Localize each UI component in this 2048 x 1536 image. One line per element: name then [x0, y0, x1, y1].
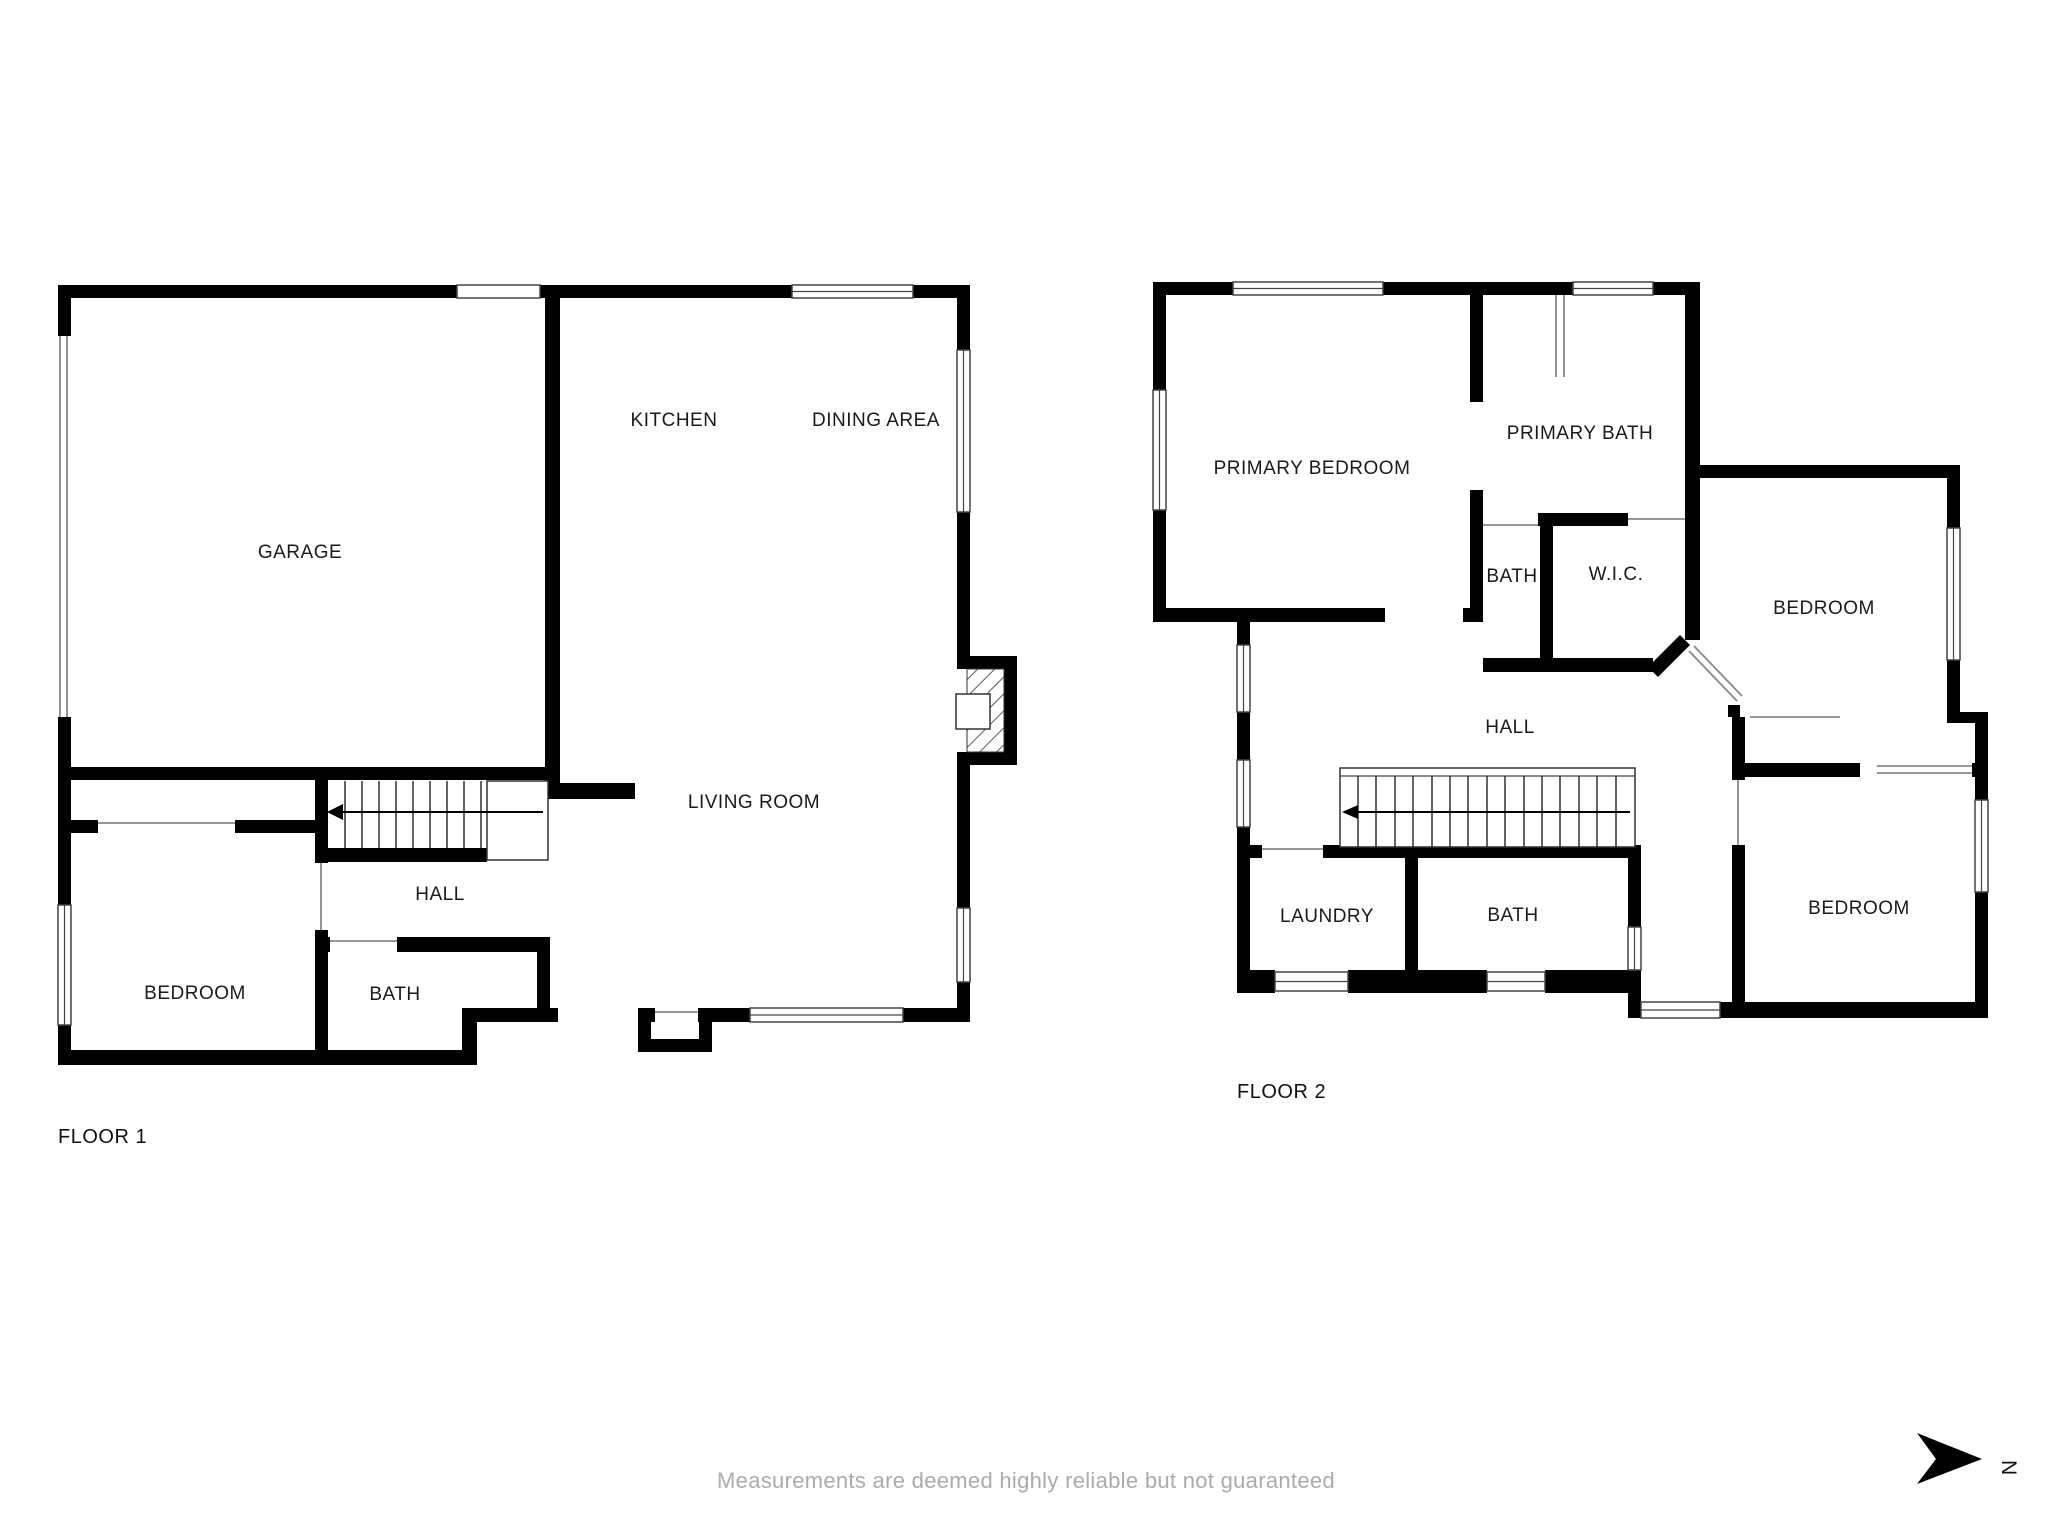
- room-label-bedroom-ne: BEDROOM: [1773, 598, 1875, 619]
- room-label-laundry: LAUNDRY: [1280, 906, 1374, 927]
- room-label-bedroom-se: BEDROOM: [1808, 898, 1910, 919]
- stairs-direction-arrow-icon: [327, 804, 343, 820]
- disclaimer-text: Measurements are deemed highly reliable …: [717, 1468, 1335, 1493]
- floor1-walls: [58, 285, 970, 1065]
- north-label: N: [1997, 1460, 2020, 1475]
- room-label-bath-f1: BATH: [369, 984, 420, 1005]
- floor1-plan: GARAGE KITCHEN DINING AREA LIVING ROOM H…: [58, 285, 1017, 1148]
- floorplan-image: GARAGE KITCHEN DINING AREA LIVING ROOM H…: [0, 0, 2048, 1536]
- room-label-bedroom-f1: BEDROOM: [144, 983, 246, 1004]
- room-label-hall-f2: HALL: [1485, 717, 1535, 738]
- floor1-title: FLOOR 1: [58, 1126, 147, 1148]
- room-label-wic: W.I.C.: [1589, 564, 1644, 585]
- floor2-stairs: [1340, 768, 1635, 847]
- fireplace-icon: [956, 656, 1017, 765]
- floor1-openings: [98, 823, 397, 941]
- room-label-dining-area: DINING AREA: [812, 410, 940, 431]
- room-label-primary-bedroom: PRIMARY BEDROOM: [1214, 458, 1411, 479]
- room-label-garage: GARAGE: [258, 542, 342, 563]
- room-label-bath-upper-f2: BATH: [1486, 566, 1537, 587]
- room-label-living-room: LIVING ROOM: [688, 792, 820, 813]
- floor2-title: FLOOR 2: [1237, 1081, 1326, 1103]
- room-label-bath-lower-f2: BATH: [1487, 905, 1538, 926]
- floor1-windows: [58, 285, 970, 1025]
- door-swing-line: [1689, 651, 1737, 701]
- floor2-plan: PRIMARY BEDROOM PRIMARY BATH BATH W.I.C.…: [1153, 282, 1988, 1103]
- room-label-primary-bath: PRIMARY BATH: [1507, 423, 1653, 444]
- north-arrow-icon: N: [1917, 1433, 2020, 1484]
- room-label-kitchen: KITCHEN: [631, 410, 718, 431]
- room-label-hall-f1: HALL: [415, 884, 465, 905]
